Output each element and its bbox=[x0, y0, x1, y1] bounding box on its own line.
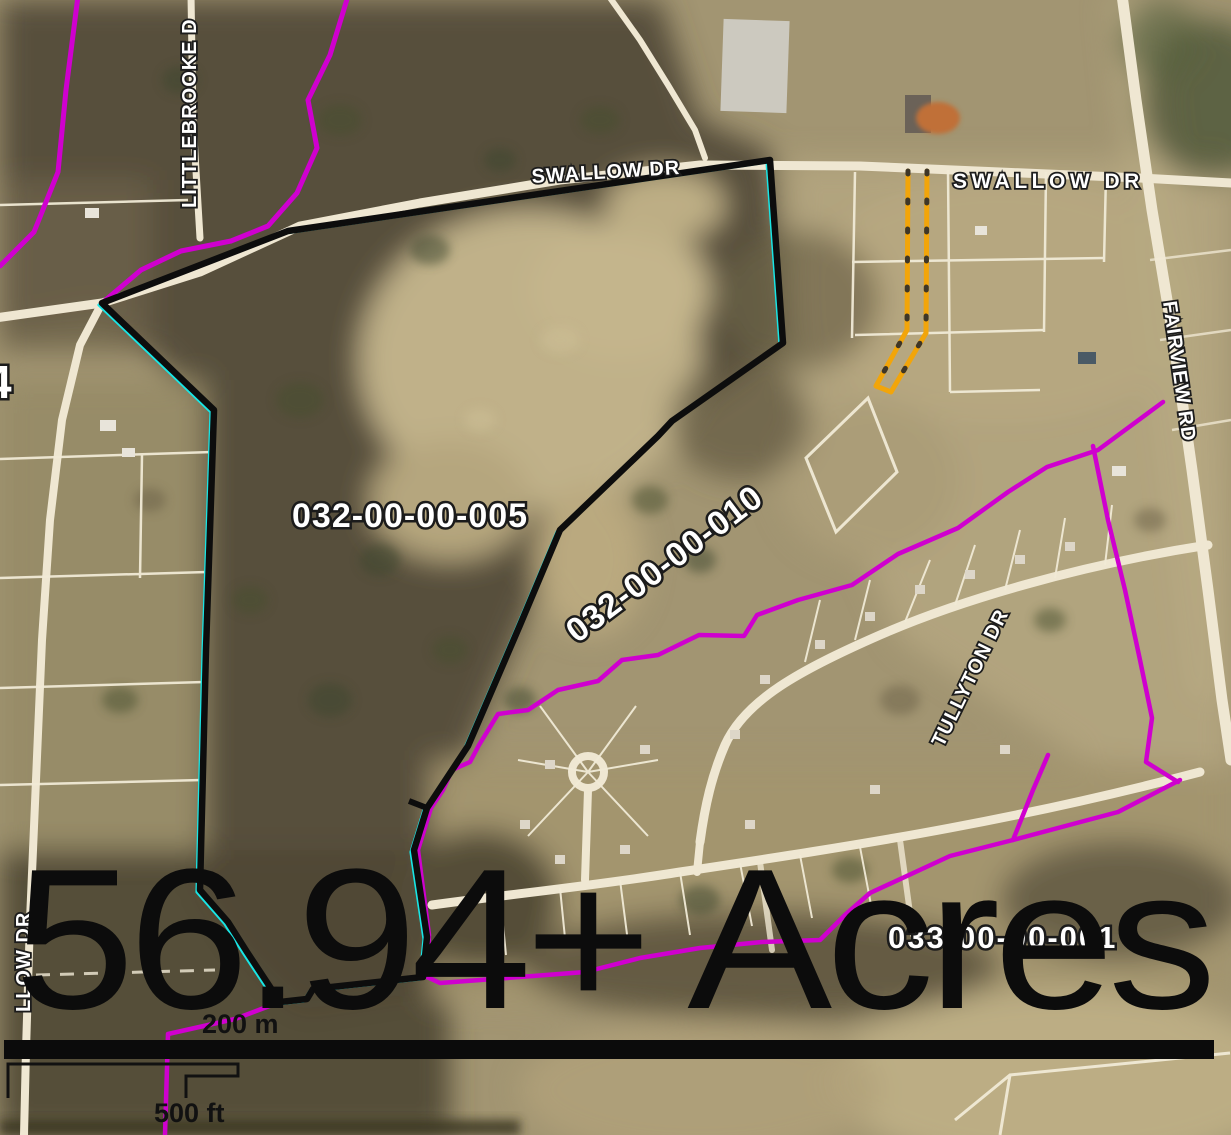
scale-imperial-label: 500 ft bbox=[154, 1098, 225, 1128]
street-label-littlebrooke: LITTLEBROOKE D bbox=[179, 18, 201, 208]
street-label-swallow-east: SWALLOW DR bbox=[953, 170, 1144, 193]
aerial-parcel-map-canvas[interactable]: SWALLOW DR SWALLOW DR FAIRVIEW RD LITTLE… bbox=[0, 0, 1231, 1135]
acreage-overlay-text: 56.94+ Acres bbox=[14, 828, 1210, 1051]
parcel-label-edge-partial: 4 bbox=[0, 356, 12, 408]
parcel-label-032-005: 032-00-00-005 bbox=[292, 497, 528, 535]
map-viewport: SWALLOW DR SWALLOW DR FAIRVIEW RD LITTLE… bbox=[0, 0, 1231, 1135]
concrete-pad bbox=[720, 19, 789, 113]
